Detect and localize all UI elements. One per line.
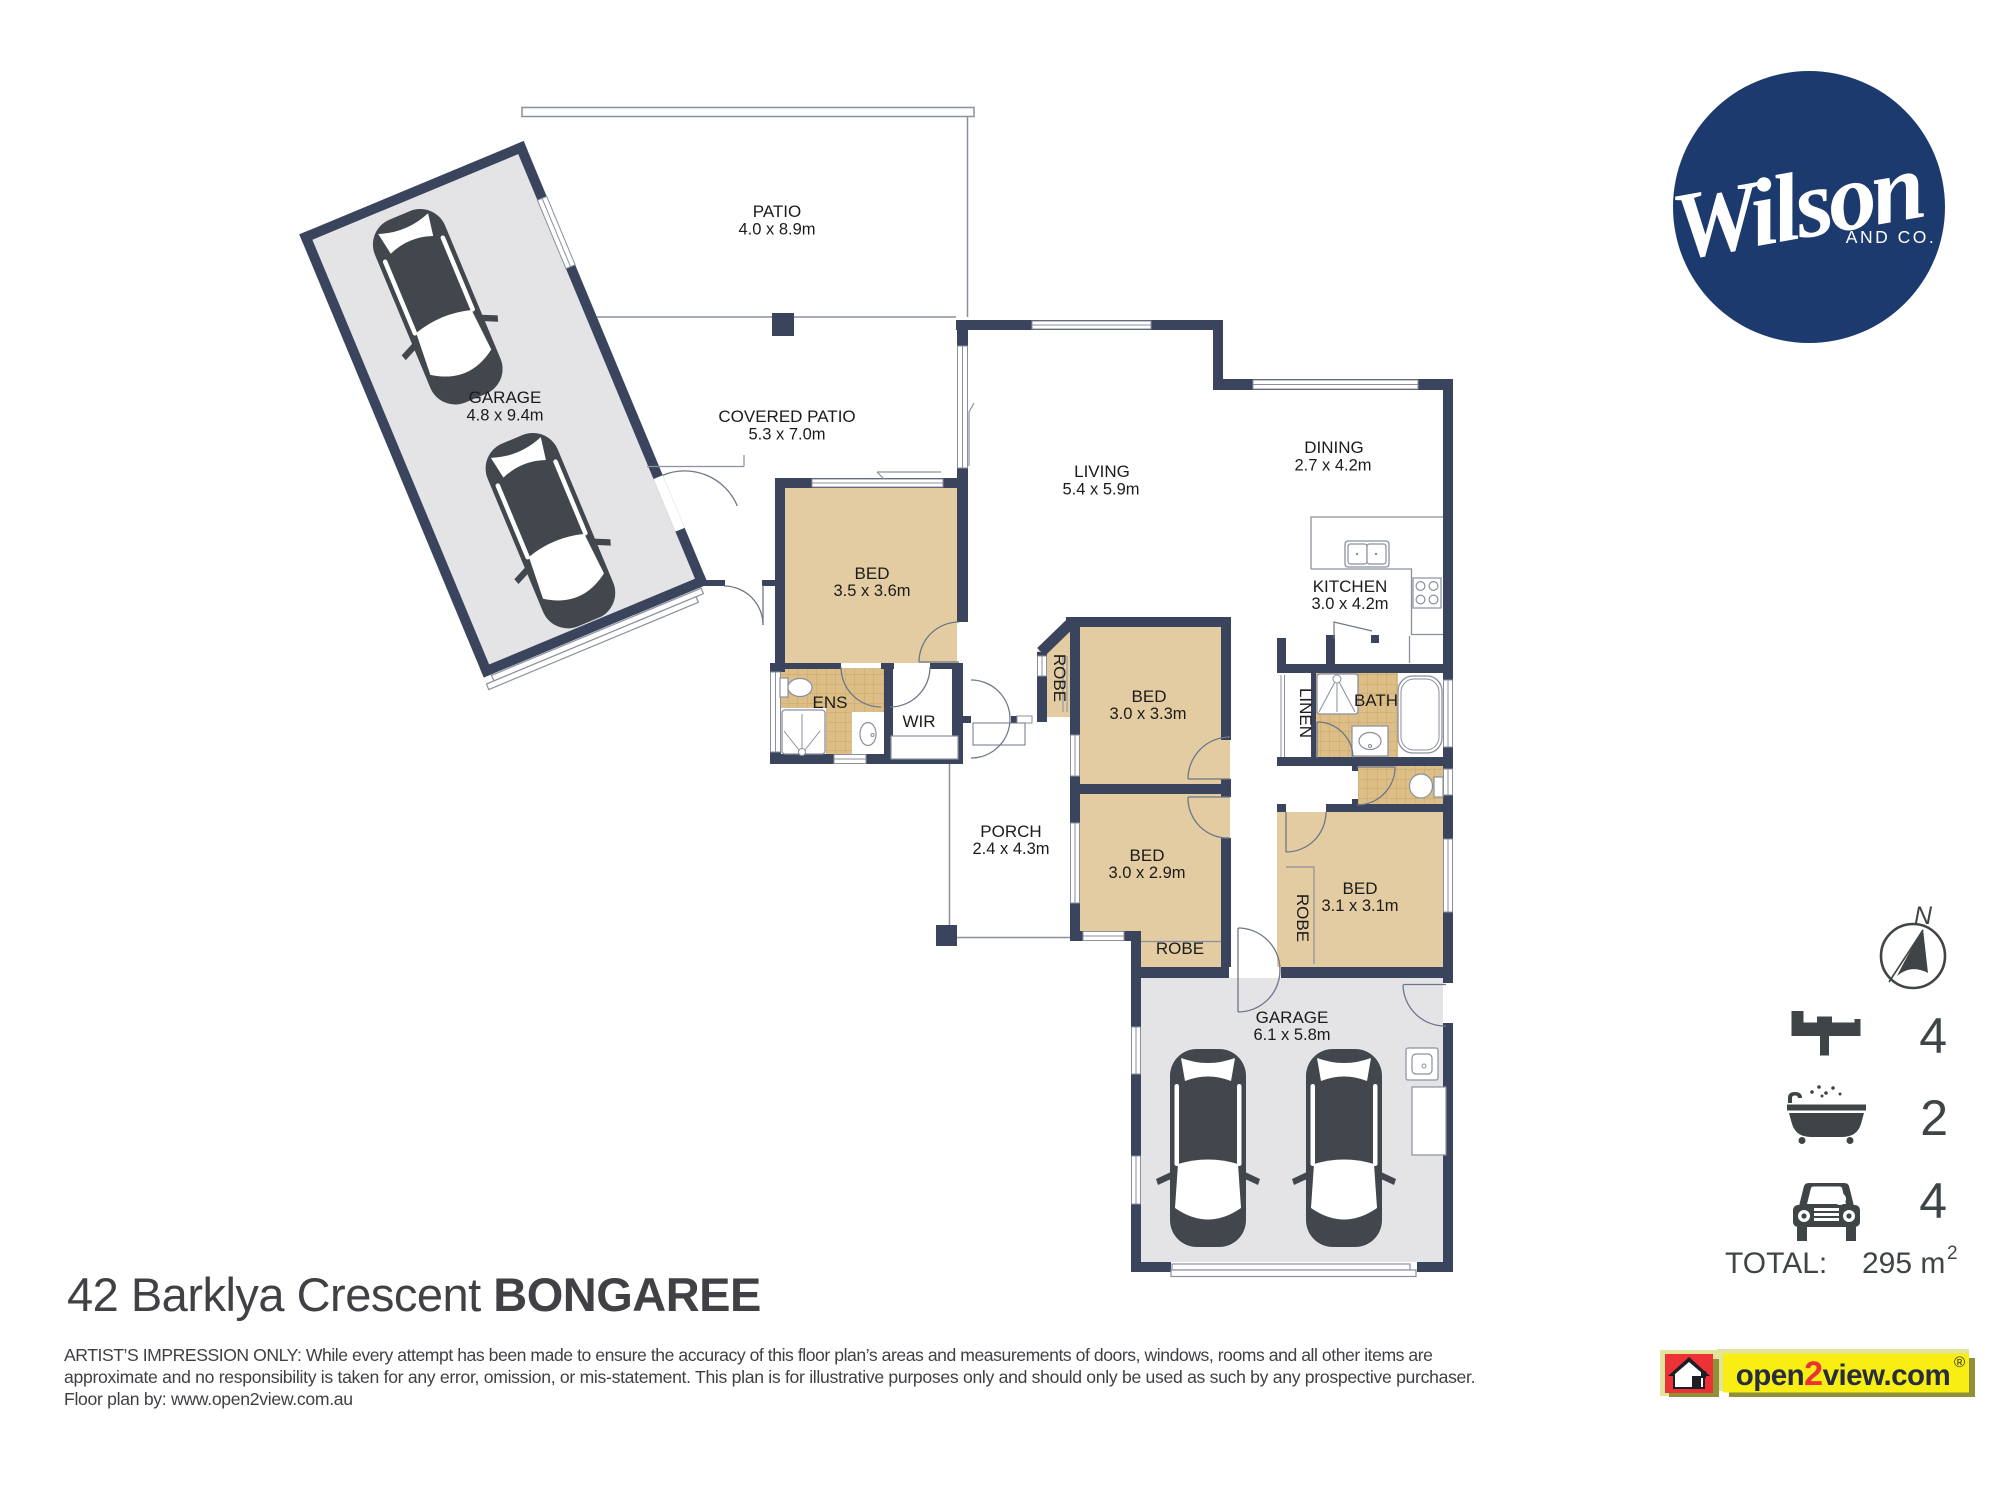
svg-text:2: 2 [1947, 1243, 1958, 1264]
svg-text:approximate and no responsibil: approximate and no responsibility is tak… [64, 1367, 1475, 1387]
svg-text:BED: BED [1130, 846, 1165, 865]
svg-text:4: 4 [1919, 1008, 1947, 1064]
svg-text:LINEN: LINEN [1296, 688, 1315, 738]
svg-text:ENS: ENS [813, 693, 848, 712]
svg-text:AND CO.: AND CO. [1846, 227, 1936, 247]
svg-text:295 m: 295 m [1862, 1247, 1945, 1280]
svg-text:6.1 x 5.8m: 6.1 x 5.8m [1253, 1026, 1330, 1044]
svg-text:KITCHEN: KITCHEN [1313, 577, 1388, 596]
svg-text:42 Barklya Crescent BONGAREE: 42 Barklya Crescent BONGAREE [67, 1268, 761, 1321]
svg-text:4: 4 [1919, 1173, 1947, 1229]
svg-text:BED: BED [1132, 687, 1167, 706]
svg-text:LIVING: LIVING [1074, 462, 1130, 481]
svg-text:BATH: BATH [1354, 691, 1398, 710]
svg-text:4.0 x 8.9m: 4.0 x 8.9m [738, 221, 815, 239]
svg-text:TOTAL:: TOTAL: [1725, 1247, 1827, 1280]
svg-text:3.0 x 4.2m: 3.0 x 4.2m [1311, 595, 1388, 613]
svg-text:GARAGE: GARAGE [469, 388, 542, 407]
svg-text:5.3 x 7.0m: 5.3 x 7.0m [748, 426, 825, 444]
svg-text:open2view.com: open2view.com [1736, 1355, 1951, 1393]
svg-text:ROBE: ROBE [1050, 654, 1069, 702]
svg-text:ROBE: ROBE [1293, 894, 1312, 942]
svg-text:2.4 x 4.3m: 2.4 x 4.3m [972, 840, 1049, 858]
svg-text:ARTIST’S IMPRESSION ONLY: Whil: ARTIST’S IMPRESSION ONLY: While every at… [64, 1345, 1433, 1365]
svg-text:2: 2 [1920, 1090, 1948, 1146]
svg-text:ROBE: ROBE [1156, 939, 1204, 958]
svg-text:N: N [1914, 902, 1933, 930]
svg-text:®: ® [1954, 1354, 1965, 1371]
svg-text:PATIO: PATIO [753, 202, 802, 221]
svg-text:3.0 x 2.9m: 3.0 x 2.9m [1108, 864, 1185, 882]
svg-text:Floor plan by: www.open2view.c: Floor plan by: www.open2view.com.au [64, 1389, 353, 1409]
svg-text:2.7 x 4.2m: 2.7 x 4.2m [1294, 457, 1371, 475]
svg-text:4.8 x 9.4m: 4.8 x 9.4m [466, 407, 543, 425]
svg-text:5.4 x 5.9m: 5.4 x 5.9m [1062, 481, 1139, 499]
svg-text:COVERED PATIO: COVERED PATIO [718, 407, 855, 426]
svg-text:3.1 x 3.1m: 3.1 x 3.1m [1321, 897, 1398, 915]
svg-text:PORCH: PORCH [980, 822, 1041, 841]
svg-text:3.0 x 3.3m: 3.0 x 3.3m [1109, 705, 1186, 723]
svg-text:3.5 x 3.6m: 3.5 x 3.6m [833, 582, 910, 600]
svg-text:BED: BED [1343, 879, 1378, 898]
svg-text:BED: BED [855, 564, 890, 583]
svg-text:GARAGE: GARAGE [1256, 1008, 1329, 1027]
svg-text:DINING: DINING [1304, 438, 1364, 457]
svg-text:WIR: WIR [902, 712, 935, 731]
